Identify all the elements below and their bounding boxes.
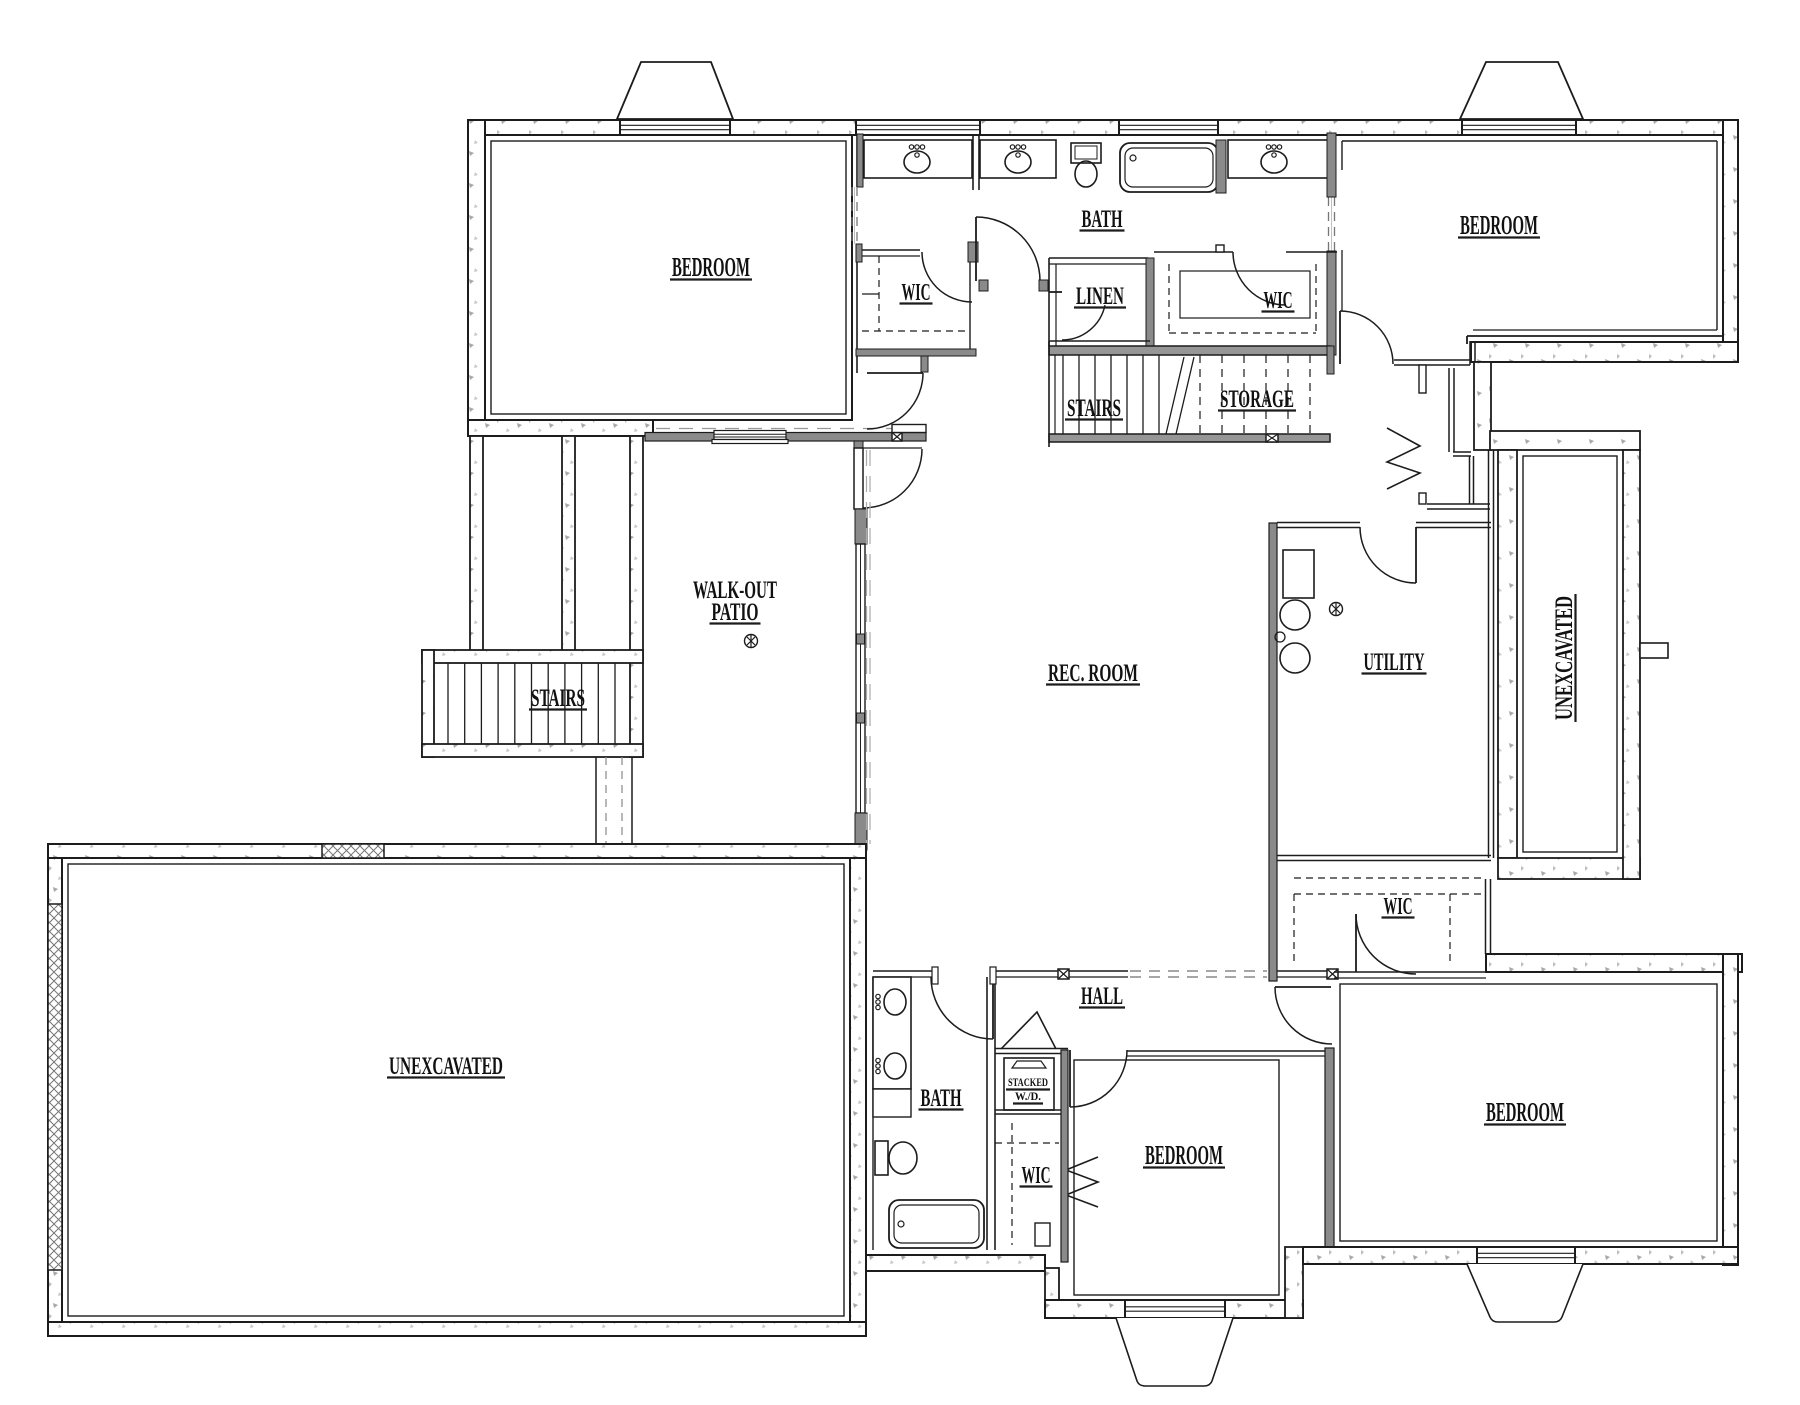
svg-text:STAIRS: STAIRS xyxy=(531,685,585,712)
svg-text:STORAGE: STORAGE xyxy=(1220,386,1294,413)
svg-text:STACKED: STACKED xyxy=(1008,1075,1048,1089)
svg-text:BEDROOM: BEDROOM xyxy=(672,252,750,282)
svg-text:BEDROOM: BEDROOM xyxy=(1145,1140,1223,1170)
svg-text:UTILITY: UTILITY xyxy=(1364,649,1425,676)
svg-text:LINEN: LINEN xyxy=(1076,283,1124,310)
svg-text:BEDROOM: BEDROOM xyxy=(1460,210,1538,240)
svg-text:WIC: WIC xyxy=(1384,894,1413,920)
svg-text:UNEXCAVATED: UNEXCAVATED xyxy=(389,1053,503,1080)
svg-text:HALL: HALL xyxy=(1081,983,1123,1010)
svg-text:UNEXCAVATED: UNEXCAVATED xyxy=(1551,596,1578,720)
svg-text:BEDROOM: BEDROOM xyxy=(1486,1097,1564,1127)
svg-text:BATH: BATH xyxy=(921,1085,962,1112)
svg-text:W./D.: W./D. xyxy=(1015,1089,1041,1103)
svg-text:WIC: WIC xyxy=(1022,1163,1051,1189)
svg-text:WIC: WIC xyxy=(902,280,931,306)
svg-text:BATH: BATH xyxy=(1082,206,1123,233)
svg-text:PATIO: PATIO xyxy=(712,599,759,626)
svg-text:REC. ROOM: REC. ROOM xyxy=(1048,660,1138,687)
svg-text:WIC: WIC xyxy=(1264,288,1293,314)
svg-text:STAIRS: STAIRS xyxy=(1067,395,1121,422)
